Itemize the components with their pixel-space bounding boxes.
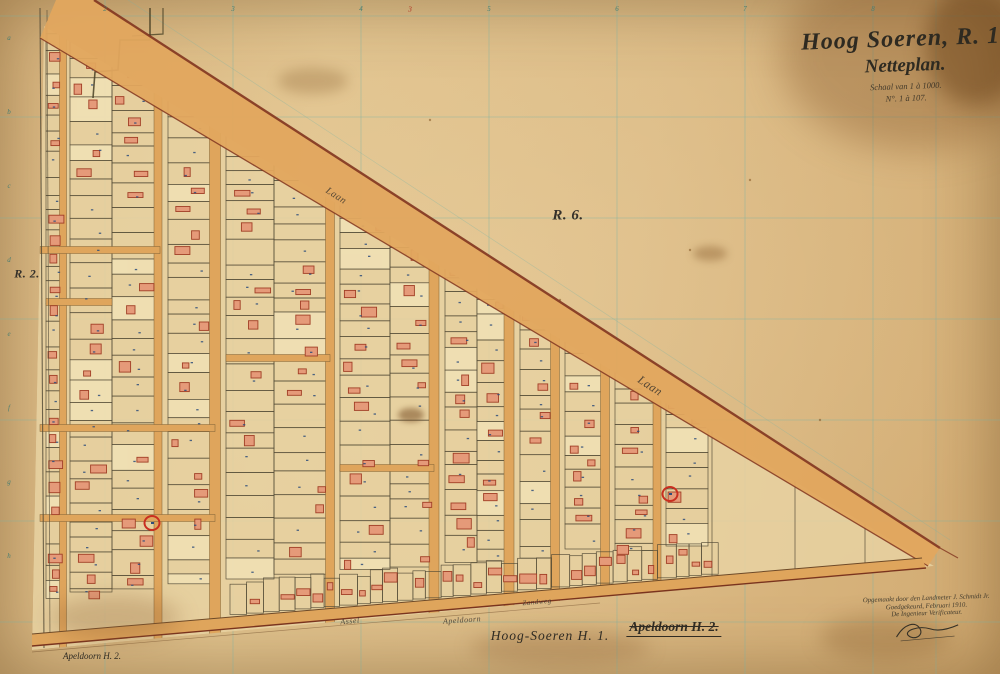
title-block: Hoog Soeren, R. 1. Netteplan. Schaal van… bbox=[799, 22, 1000, 106]
map-sheet: R. 6.R. 2.LaanLaanAsselApeldoornZandweg2… bbox=[0, 0, 1000, 674]
corner-label-apeldoorn: Apeldoorn H. 2. bbox=[63, 651, 121, 661]
sheet-subtitle: Netteplan. bbox=[800, 51, 1000, 80]
signature-block: Opgemaakt door den Landmeter J. Schmidt … bbox=[851, 592, 1000, 650]
bottom-label-apeldoorn-struck: Apeldoorn H. 2. bbox=[626, 619, 721, 637]
bottom-label-hoog-soeren: Hoog-Soeren H. 1. bbox=[491, 628, 609, 644]
surveyor-signature-flourish bbox=[892, 620, 963, 644]
top-edge-red-mark: 3 bbox=[408, 5, 412, 14]
signature-text-lines: Opgemaakt door den Landmeter J. Schmidt … bbox=[851, 592, 1000, 620]
